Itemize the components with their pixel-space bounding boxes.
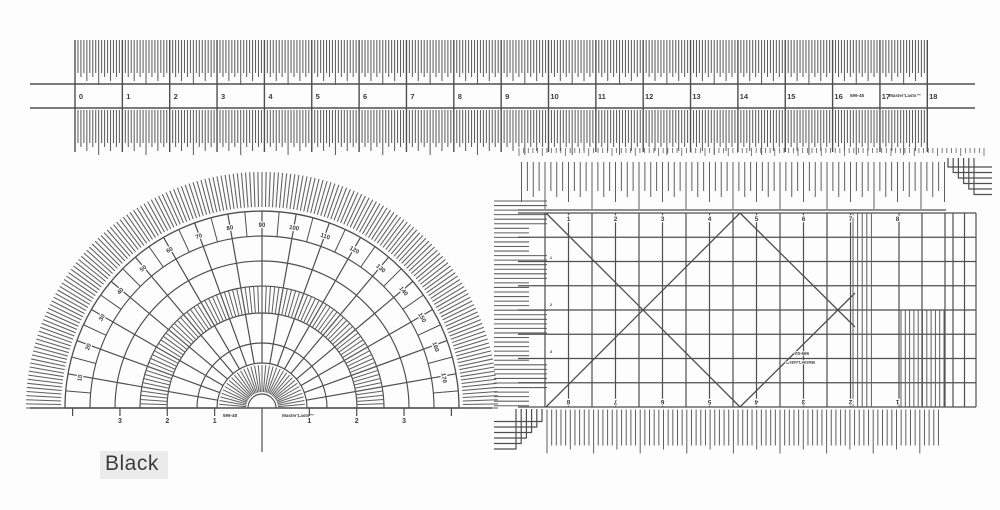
svg-text:5: 5	[755, 216, 759, 223]
svg-text:2: 2	[174, 92, 178, 101]
svg-text:1: 1	[126, 92, 130, 101]
svg-text:100: 100	[288, 225, 300, 233]
svg-text:2: 2	[355, 418, 359, 425]
svg-text:599-48: 599-48	[850, 93, 865, 98]
svg-text:7: 7	[410, 92, 414, 101]
svg-text:Master'Lasts™: Master'Lasts™	[282, 413, 314, 418]
svg-text:7: 7	[613, 398, 617, 405]
svg-text:110: 110	[319, 233, 331, 242]
svg-text:7: 7	[849, 216, 853, 223]
product-sheet: 0123456789101112131415161718599-48Master…	[0, 0, 1000, 510]
svg-text:599-02: 599-02	[794, 351, 809, 356]
svg-text:70: 70	[195, 233, 204, 241]
svg-text:4: 4	[708, 216, 712, 223]
svg-text:Master'Lasts™: Master'Lasts™	[889, 93, 921, 98]
svg-text:1: 1	[213, 418, 217, 425]
svg-text:6: 6	[363, 92, 367, 101]
svg-text:5: 5	[316, 92, 320, 101]
svg-text:13: 13	[692, 92, 700, 101]
svg-text:4: 4	[268, 92, 273, 101]
svg-text:11: 11	[598, 92, 606, 101]
svg-text:60: 60	[166, 246, 175, 255]
svg-text:8: 8	[566, 398, 570, 405]
svg-text:4: 4	[754, 398, 758, 405]
svg-text:1: 1	[550, 255, 553, 260]
svg-text:Master'Lasts™: Master'Lasts™	[785, 360, 815, 365]
svg-text:1: 1	[307, 418, 311, 425]
svg-text:3: 3	[402, 418, 406, 425]
svg-text:8: 8	[896, 216, 900, 223]
protractor: 1020304050607080901001101201301401501601…	[26, 172, 498, 452]
svg-text:3: 3	[221, 92, 225, 101]
svg-text:10: 10	[550, 92, 558, 101]
svg-text:2: 2	[848, 398, 852, 405]
svg-text:2: 2	[165, 418, 169, 425]
svg-text:14: 14	[740, 92, 749, 101]
svg-text:20: 20	[85, 342, 93, 351]
svg-text:80: 80	[226, 225, 234, 232]
color-caption: Black	[100, 451, 168, 479]
svg-text:5: 5	[707, 398, 711, 405]
svg-text:2: 2	[614, 216, 618, 223]
svg-text:90: 90	[259, 223, 266, 229]
svg-text:6: 6	[660, 398, 664, 405]
svg-text:12: 12	[645, 92, 653, 101]
svg-text:2: 2	[550, 302, 553, 307]
svg-text:9: 9	[505, 92, 509, 101]
line-art-canvas: 0123456789101112131415161718599-48Master…	[0, 0, 1000, 510]
templates-line-art: 0123456789101112131415161718599-48Master…	[0, 0, 1000, 510]
svg-text:599-48: 599-48	[223, 413, 238, 418]
svg-text:0: 0	[79, 92, 83, 101]
svg-text:10: 10	[77, 374, 84, 382]
svg-text:3: 3	[801, 398, 805, 405]
svg-text:6: 6	[802, 216, 806, 223]
svg-text:40: 40	[117, 287, 126, 296]
grid-ruler-template: 1234567887654321123599-02Master'Lasts™	[494, 148, 992, 454]
svg-text:18: 18	[929, 92, 937, 101]
svg-text:8: 8	[458, 92, 462, 101]
svg-text:170: 170	[439, 373, 447, 385]
svg-text:130: 130	[375, 264, 387, 275]
svg-text:3: 3	[661, 216, 665, 223]
ruler-18in: 0123456789101112131415161718599-48Master…	[30, 40, 975, 155]
svg-text:160: 160	[430, 341, 439, 353]
svg-text:1: 1	[567, 216, 571, 223]
svg-text:3: 3	[118, 418, 122, 425]
svg-text:16: 16	[834, 92, 842, 101]
svg-text:3: 3	[550, 349, 553, 354]
svg-text:140: 140	[397, 286, 408, 298]
svg-text:15: 15	[787, 92, 795, 101]
svg-text:1: 1	[895, 398, 899, 405]
